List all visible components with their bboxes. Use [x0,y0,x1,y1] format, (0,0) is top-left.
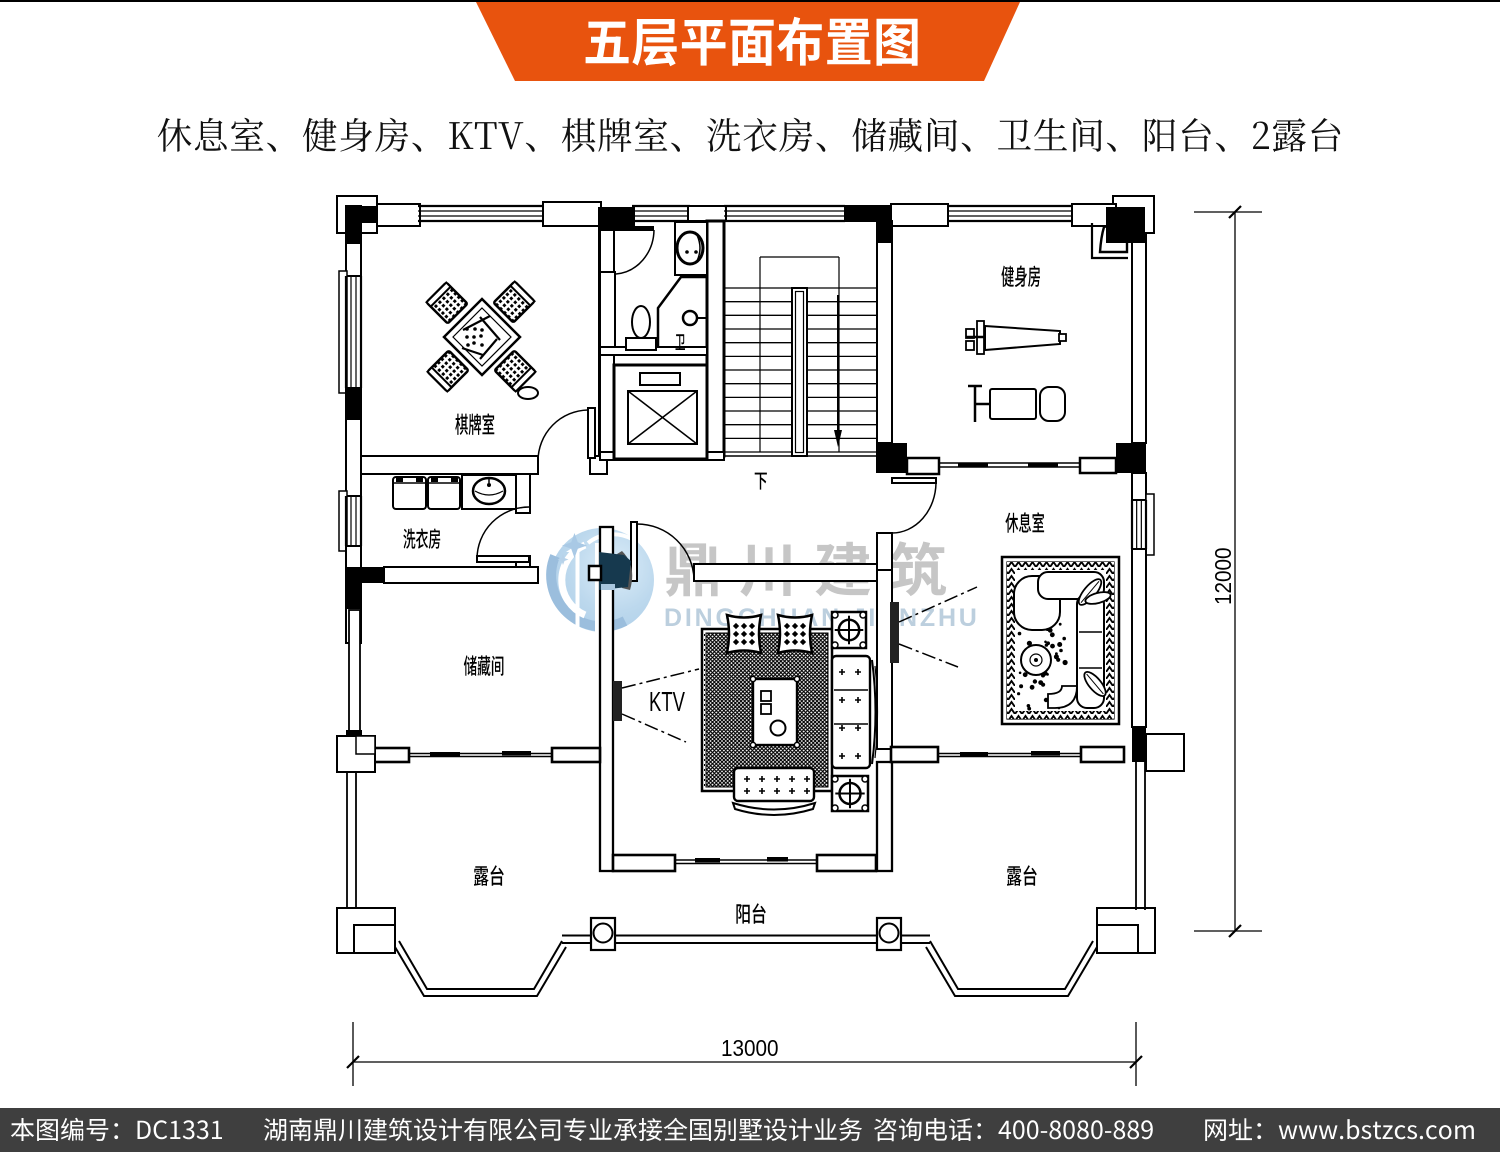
svg-text:12000: 12000 [1210,547,1236,605]
svg-text:13000: 13000 [721,1035,779,1061]
svg-text:KTV: KTV [649,687,685,718]
